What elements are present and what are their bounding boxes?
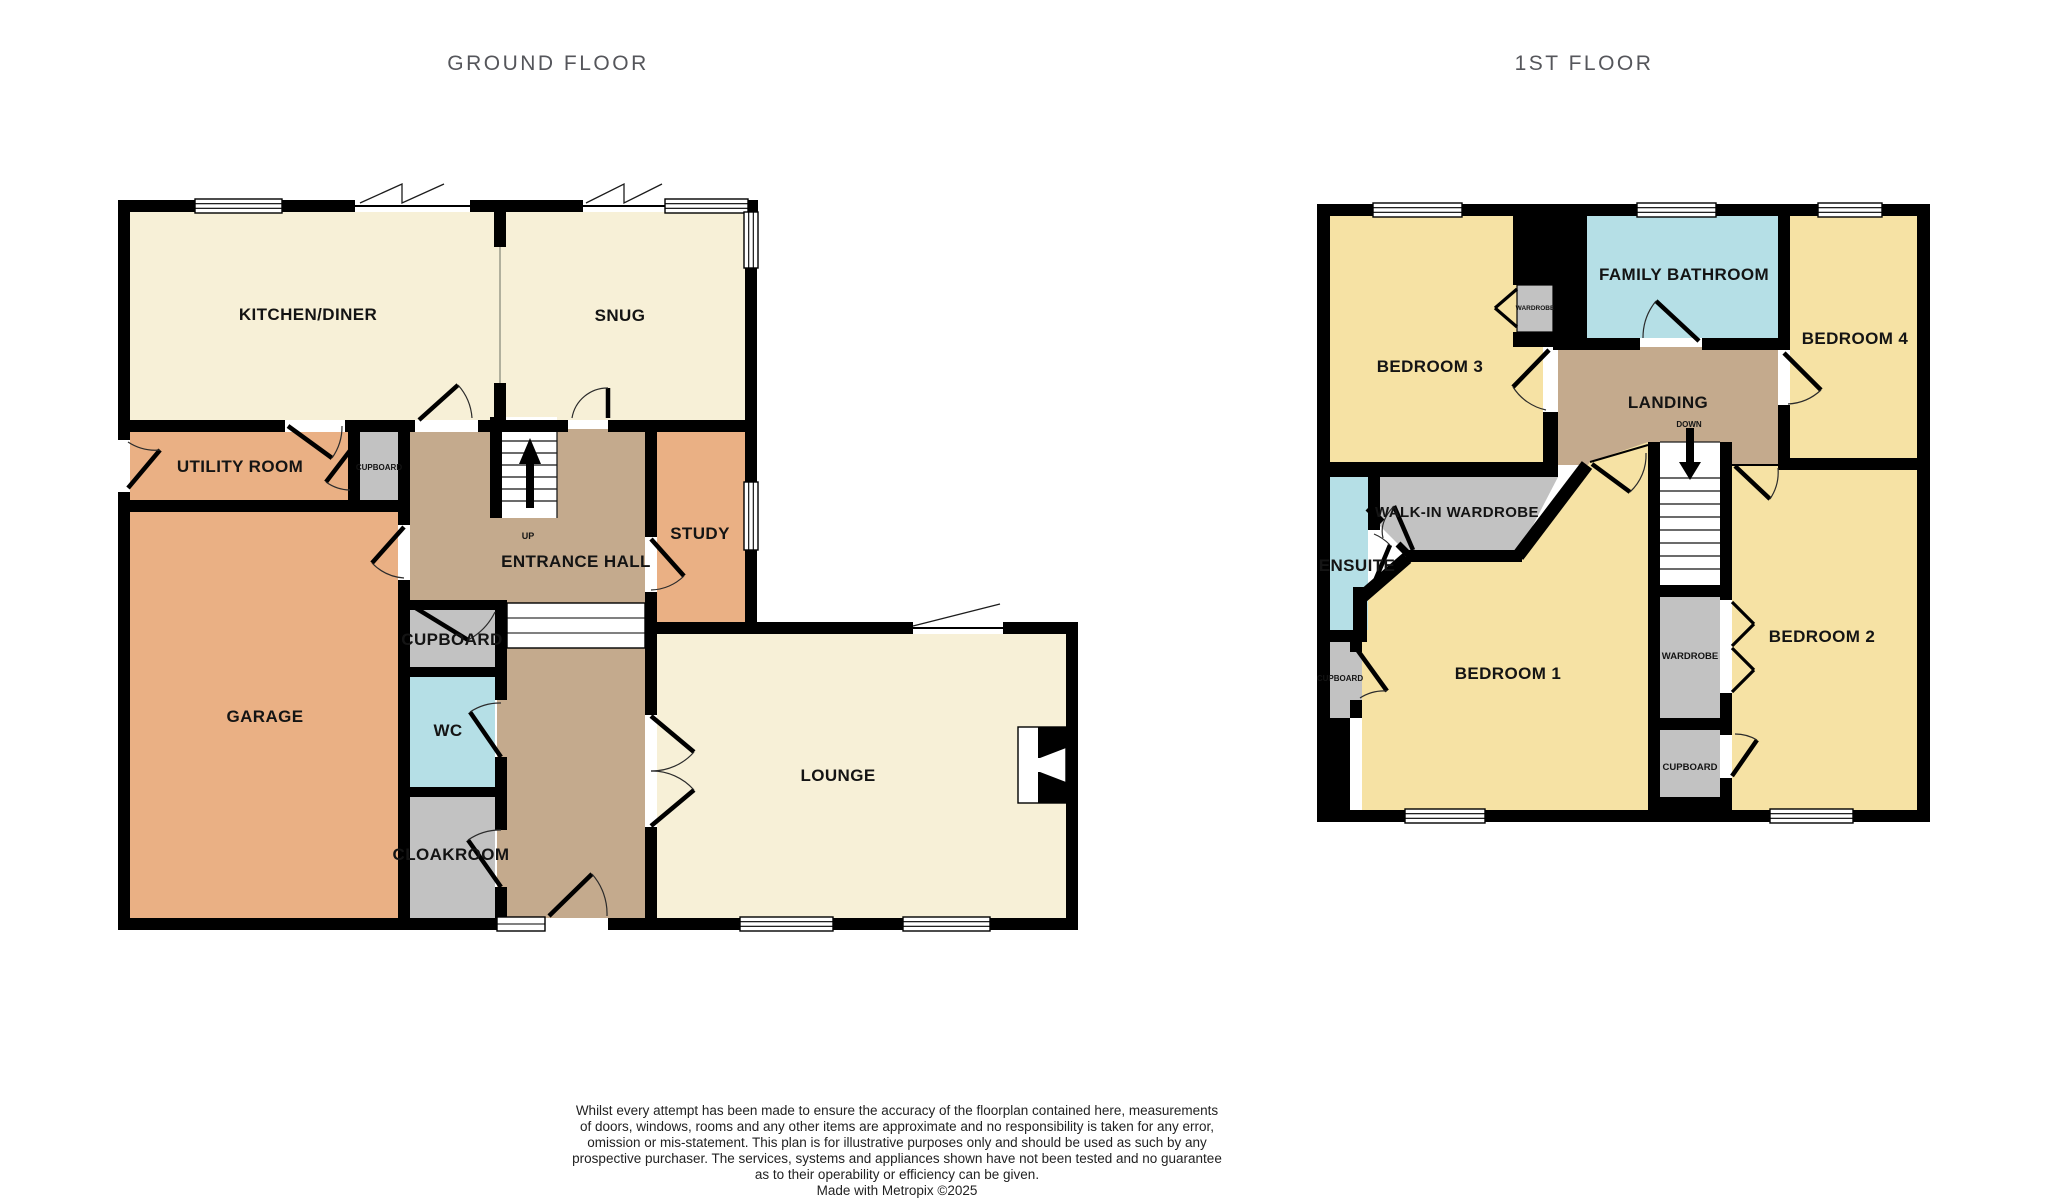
room-kitchen-diner bbox=[130, 212, 745, 420]
window bbox=[740, 917, 833, 931]
window bbox=[1405, 809, 1485, 823]
room-label-lounge: LOUNGE bbox=[800, 766, 875, 785]
room-label-bedroom-1: BEDROOM 1 bbox=[1455, 664, 1562, 683]
window bbox=[903, 917, 990, 931]
room-label-bedroom-2: BEDROOM 2 bbox=[1769, 627, 1876, 646]
folding-door-opening bbox=[583, 184, 665, 206]
first-floor-plan: BEDROOM 3 WARDROBE FAMILY BATHROOM BEDRO… bbox=[1317, 203, 1930, 823]
hall-steps bbox=[495, 600, 645, 650]
stairs-down-label: DOWN bbox=[1676, 420, 1702, 429]
room-label-utility: UTILITY ROOM bbox=[177, 457, 303, 476]
room-label-landing: LANDING bbox=[1628, 393, 1708, 412]
void-block bbox=[1513, 210, 1587, 285]
floorplan-canvas: GROUND FLOOR 1ST FLOOR bbox=[0, 0, 2047, 1200]
room-label-kitchen-diner: KITCHEN/DINER bbox=[239, 305, 377, 324]
room-entrance-hall-upper bbox=[410, 432, 497, 600]
ground-floor-plan: KITCHEN/DINER SNUG UTILITY ROOM CUPBOARD… bbox=[118, 184, 1078, 931]
floorplan-page: GROUND FLOOR 1ST FLOOR bbox=[0, 0, 2047, 1200]
room-label-cupboard-mid: CUPBOARD bbox=[1663, 762, 1718, 773]
window bbox=[1770, 809, 1853, 823]
room-label-family-bathroom: FAMILY BATHROOM bbox=[1599, 265, 1769, 284]
fireplace bbox=[1018, 727, 1066, 803]
room-label-cupboard-left: CUPBOARD bbox=[1317, 674, 1363, 683]
disclaimer-line: omission or mis-statement. This plan is … bbox=[587, 1135, 1207, 1150]
made-with-credit: Made with Metropix ©2025 bbox=[817, 1183, 978, 1198]
room-label-bedroom-4: BEDROOM 4 bbox=[1802, 329, 1909, 348]
room-label-snug: SNUG bbox=[595, 306, 646, 325]
disclaimer-block: Whilst every attempt has been made to en… bbox=[572, 1103, 1222, 1198]
window bbox=[1373, 203, 1462, 217]
window bbox=[1637, 203, 1716, 217]
room-label-cupboard: CUPBOARD bbox=[401, 630, 502, 649]
staircase-down bbox=[1660, 428, 1720, 585]
room-label-entrance-hall: ENTRANCE HALL bbox=[501, 552, 651, 571]
room-label-study: STUDY bbox=[670, 524, 730, 543]
room-label-ensuite: ENSUITE bbox=[1319, 556, 1395, 575]
room-label-wardrobe: WARDROBE bbox=[1662, 651, 1718, 662]
disclaimer-line: prospective purchaser. The services, sys… bbox=[572, 1151, 1222, 1166]
room-label-cloakroom: CLOAKROOM bbox=[393, 845, 510, 864]
window bbox=[665, 199, 748, 213]
room-label-wardrobe-small: WARDROBE bbox=[1516, 305, 1555, 312]
stairs-up-label: UP bbox=[522, 531, 535, 541]
first-floor-title: 1ST FLOOR bbox=[1515, 52, 1654, 75]
disclaimer-line: Whilst every attempt has been made to en… bbox=[576, 1103, 1219, 1118]
room-label-walk-in-wardrobe: WALK-IN WARDROBE bbox=[1375, 504, 1539, 521]
folding-door-opening bbox=[355, 184, 470, 206]
window bbox=[744, 482, 758, 550]
window bbox=[497, 917, 545, 931]
disclaimer-line: of doors, windows, rooms and any other i… bbox=[580, 1119, 1214, 1134]
room-label-wc: WC bbox=[433, 721, 462, 740]
window bbox=[744, 212, 758, 268]
room-label-bedroom-3: BEDROOM 3 bbox=[1377, 357, 1484, 376]
solid-corner-block bbox=[1317, 718, 1350, 810]
ground-floor-title: GROUND FLOOR bbox=[447, 52, 649, 75]
disclaimer-line: as to their operability or efficiency ca… bbox=[755, 1167, 1039, 1182]
room-bedroom-3 bbox=[1330, 216, 1543, 462]
room-label-garage: GARAGE bbox=[226, 707, 303, 726]
window bbox=[1818, 203, 1882, 217]
window bbox=[195, 199, 282, 213]
room-label-cupboard-small: CUPBOARD bbox=[356, 463, 402, 472]
staircase-up bbox=[502, 417, 557, 518]
